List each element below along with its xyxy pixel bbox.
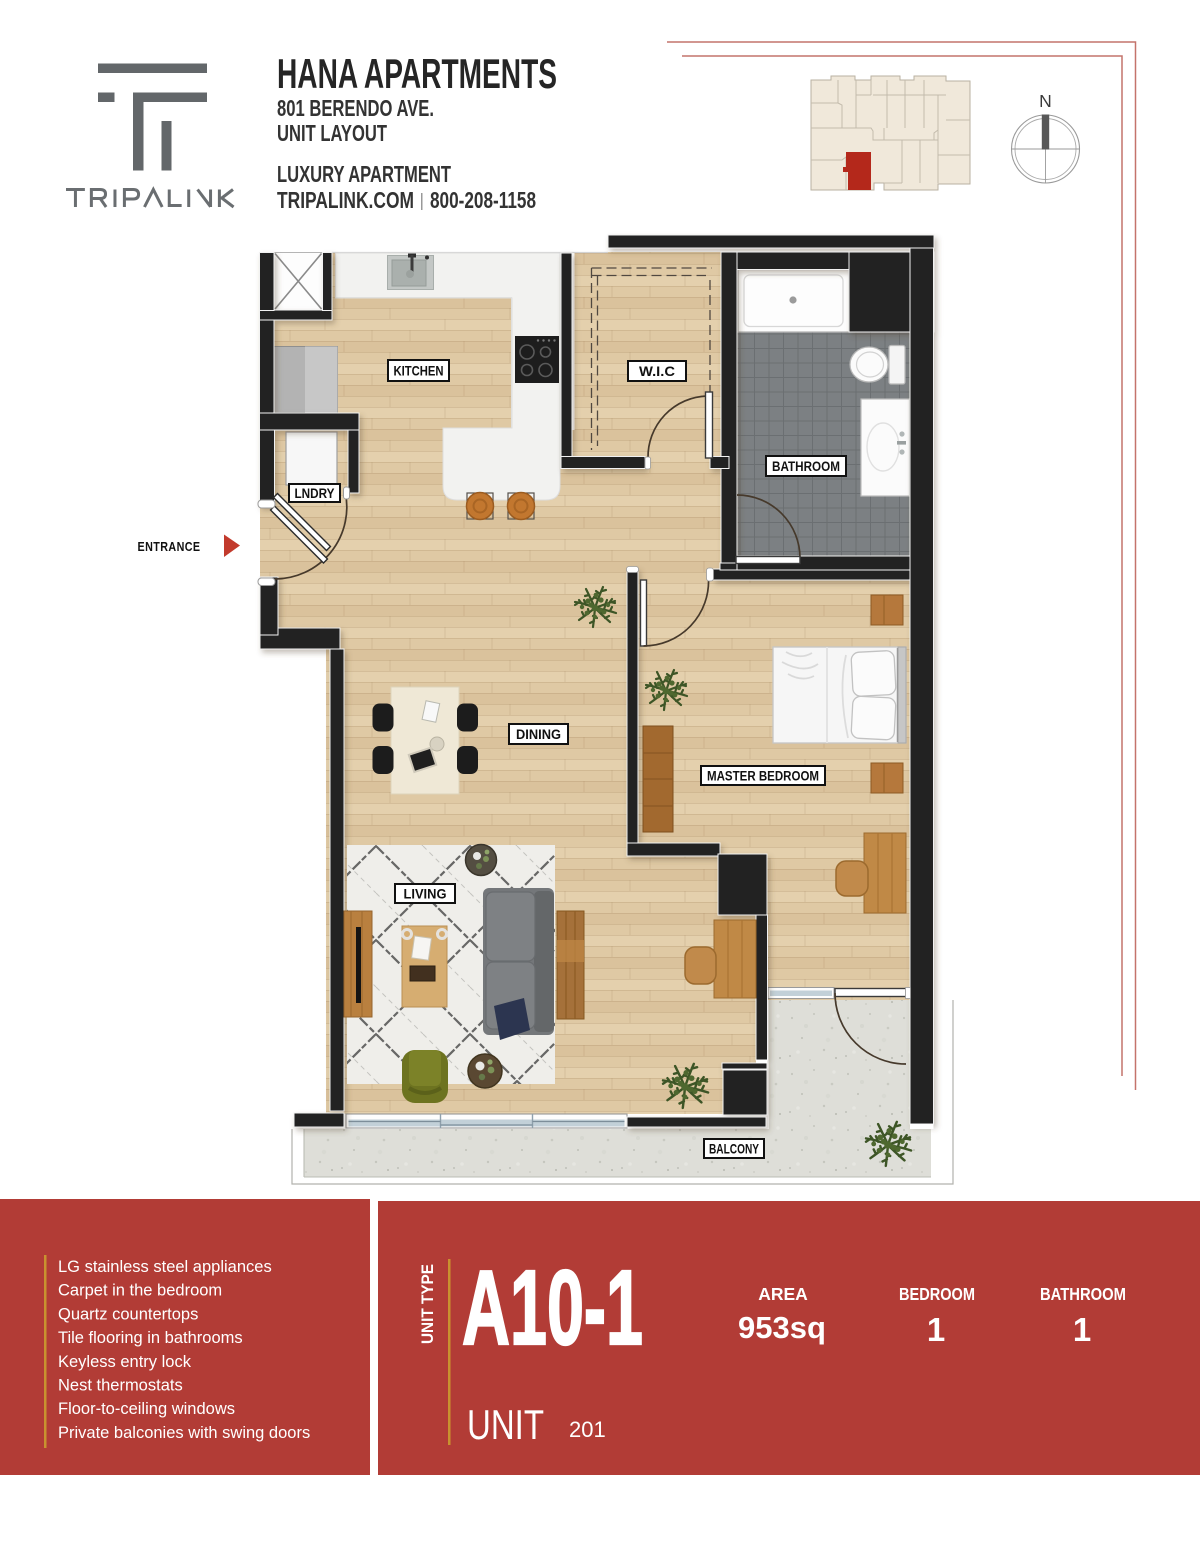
svg-text:AREA: AREA [758, 1284, 808, 1304]
svg-text:Floor-to-ceiling windows: Floor-to-ceiling windows [58, 1400, 235, 1418]
svg-text:KITCHEN: KITCHEN [394, 364, 444, 379]
svg-text:ENTRANCE: ENTRANCE [138, 539, 201, 554]
svg-text:Private balconies with swing d: Private balconies with swing doors [58, 1424, 310, 1442]
svg-text:W.I.C: W.I.C [639, 364, 675, 379]
svg-text:LNDRY: LNDRY [295, 486, 335, 501]
svg-text:LUXURY APARTMENT: LUXURY APARTMENT [277, 161, 451, 187]
svg-text:Nest thermostats: Nest thermostats [58, 1377, 183, 1395]
svg-text:N: N [1039, 91, 1052, 111]
svg-text:LIVING: LIVING [404, 887, 447, 902]
svg-text:UNIT TYPE: UNIT TYPE [418, 1264, 437, 1344]
svg-text:BEDROOM: BEDROOM [899, 1284, 975, 1304]
svg-text:LG stainless steel appliances: LG stainless steel appliances [58, 1258, 272, 1276]
svg-text:UNIT: UNIT [467, 1401, 544, 1448]
svg-text:Quartz countertops: Quartz countertops [58, 1305, 198, 1323]
svg-text:201: 201 [569, 1417, 606, 1442]
svg-text:800-208-1158: 800-208-1158 [430, 187, 536, 213]
svg-text:A10-1: A10-1 [462, 1249, 643, 1367]
svg-text:BATHROOM: BATHROOM [772, 459, 840, 474]
svg-text:1: 1 [927, 1311, 945, 1348]
svg-text:801 BERENDO AVE.: 801 BERENDO AVE. [277, 95, 434, 121]
svg-text:HANA APARTMENTS: HANA APARTMENTS [277, 50, 557, 97]
svg-text:Tile flooring in bathrooms: Tile flooring in bathrooms [58, 1329, 243, 1347]
svg-text:DINING: DINING [516, 727, 561, 742]
svg-text:UNIT LAYOUT: UNIT LAYOUT [277, 120, 387, 146]
svg-text:BATHROOM: BATHROOM [1040, 1284, 1126, 1304]
svg-text:MASTER BEDROOM: MASTER BEDROOM [707, 769, 819, 784]
svg-text:BALCONY: BALCONY [709, 1142, 759, 1157]
svg-text:953sq: 953sq [738, 1310, 826, 1345]
svg-text:Carpet in the bedroom: Carpet in the bedroom [58, 1282, 222, 1300]
svg-text:Keyless entry lock: Keyless entry lock [58, 1353, 192, 1371]
svg-text:TRIPALINK.COM: TRIPALINK.COM [277, 187, 414, 213]
svg-text:1: 1 [1073, 1311, 1091, 1348]
